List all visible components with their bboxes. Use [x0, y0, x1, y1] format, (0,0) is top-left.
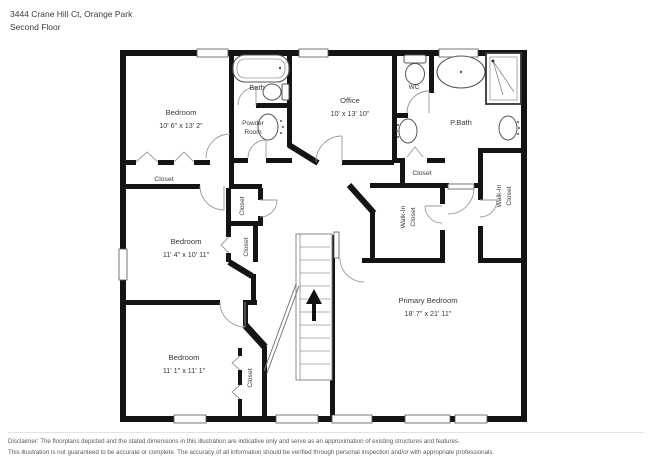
- stair-railing: [264, 284, 299, 373]
- bathtub: [233, 55, 289, 82]
- room-label-powder-2: Room: [244, 129, 261, 136]
- closet-label-bottom: Closet: [247, 368, 254, 387]
- closet-label-small: Closet: [412, 170, 431, 177]
- room-label-primary: Primary Bedroom: [398, 296, 457, 305]
- room-dims-office: 10' x 13' 10": [331, 109, 370, 118]
- walkin-mid-label-1: Walk-In: [400, 205, 407, 228]
- room-label-bedroom-top: Bedroom: [166, 108, 197, 117]
- room-dims-primary: 18' 7" x 21' 11": [405, 309, 452, 318]
- fixtures: [233, 53, 521, 143]
- room-dims-bedroom-bottom: 11' 1" x 11' 1": [163, 366, 206, 375]
- disclaimer-line-1: Disclaimer: The floorplans depicted and …: [8, 436, 644, 447]
- room-label-office: Office: [340, 96, 360, 105]
- soaking-tub: [437, 56, 485, 88]
- walkin-right-label-1: Walk-In: [496, 184, 503, 207]
- closet-label-b: Closet: [243, 237, 250, 256]
- room-label-powder-1: Powder: [242, 120, 265, 127]
- disclaimer-line-2: This illustration is not guaranteed to b…: [8, 447, 644, 458]
- floorplan-page: 3444 Crane Hill Ct, Orange Park Second F…: [0, 0, 650, 460]
- room-label-pbath: P.Bath: [450, 118, 472, 127]
- room-dims-bedroom-mid: 11' 4" x 10' 11": [163, 250, 210, 259]
- vanity-sink-left: [396, 119, 417, 143]
- toilet: [263, 84, 289, 100]
- wc-toilet: [404, 55, 426, 85]
- room-label-bath: Bath: [249, 83, 265, 92]
- floorplan-drawing: Bedroom 10' 6" x 13' 2" Bath Powder Room…: [0, 0, 650, 460]
- vanity-sink-right: [499, 116, 520, 140]
- walkin-mid-label-2: Closet: [410, 207, 417, 226]
- room-label-bedroom-mid: Bedroom: [171, 237, 202, 246]
- room-label-bedroom-bottom: Bedroom: [169, 353, 200, 362]
- room-label-wc: WC: [409, 84, 420, 91]
- closet-label-a: Closet: [239, 196, 246, 215]
- shower: [486, 53, 521, 104]
- disclaimer: Disclaimer: The floorplans depicted and …: [8, 432, 644, 458]
- closet-label-top: Closet: [154, 176, 173, 183]
- powder-sink: [258, 114, 284, 140]
- staircase: [264, 234, 332, 380]
- room-dims-bedroom-top: 10' 6" x 13' 2": [159, 121, 203, 130]
- walkin-right-label-2: Closet: [506, 186, 513, 205]
